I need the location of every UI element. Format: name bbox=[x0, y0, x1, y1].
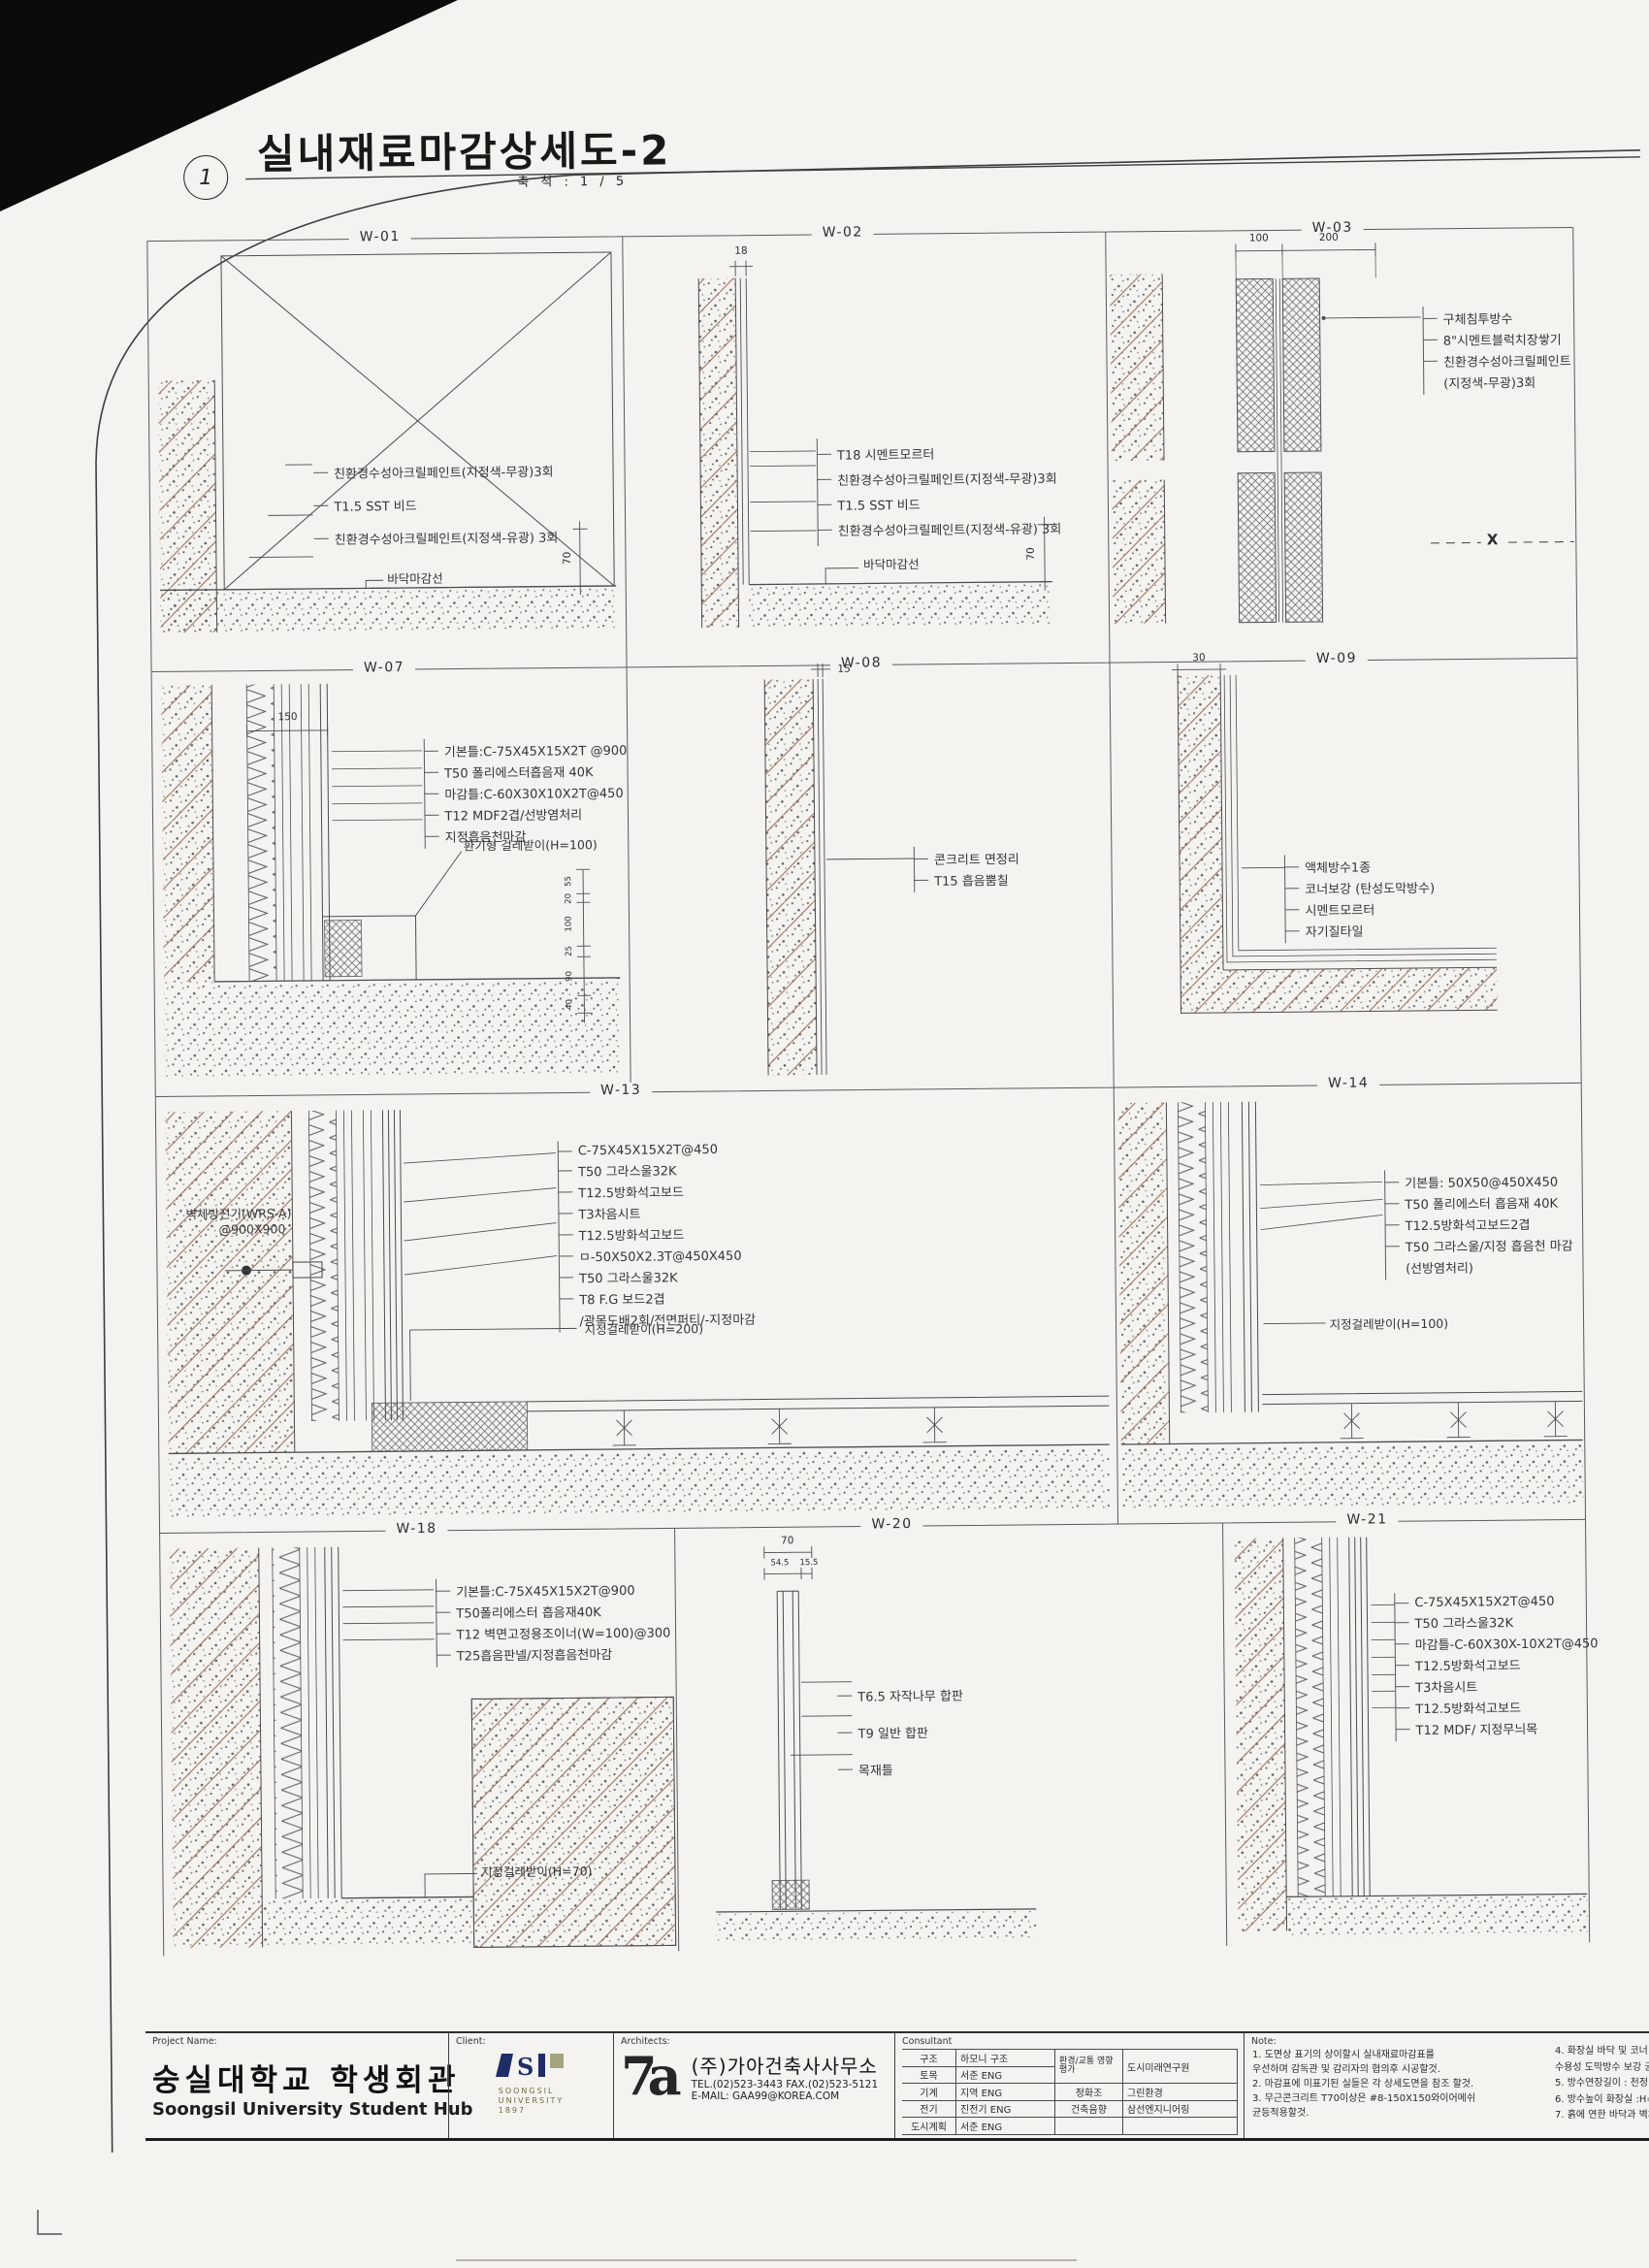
w09-dim-30: 30 bbox=[1192, 652, 1205, 664]
text-line: 3. 무근콘크리트 T70이상은 #8-150X150와이어메쉬 bbox=[1252, 2091, 1475, 2106]
annotation-item: T50 그라스울32K bbox=[559, 1160, 755, 1181]
annotation-text: T3차음시트 bbox=[1415, 1676, 1477, 1696]
annotation-item: C-75X45X15X2T@450 bbox=[559, 1143, 755, 1159]
annotation-item: T18 시멘트모르터 bbox=[818, 443, 1061, 464]
annotation-text: 시멘트모르터 bbox=[1305, 899, 1374, 919]
consultant-field: 토목 bbox=[902, 2067, 956, 2085]
architect-email: E-MAIL: GAA99@KOREA.COM bbox=[692, 2090, 879, 2102]
consultant-name: 지역 ENG bbox=[956, 2084, 1055, 2101]
leader-tick bbox=[1384, 1203, 1399, 1204]
w20-dim-155: 15.5 bbox=[799, 1558, 818, 1568]
w03-dim-100: 100 bbox=[1249, 232, 1269, 243]
leader-tick bbox=[436, 1655, 451, 1656]
w07-skirting-label: 환기형 걸레받이(H=100) bbox=[464, 834, 598, 854]
consultant-field: 환경/교통 영향평가 bbox=[1055, 2050, 1123, 2084]
panel-label-w13: W-13 bbox=[590, 1083, 652, 1099]
leader-tick bbox=[314, 538, 329, 539]
annotation-text: T12.5방화석고보드2겹 bbox=[1405, 1215, 1530, 1234]
text-line: UNIVERSITY bbox=[499, 2096, 565, 2106]
leader-tick bbox=[1385, 1267, 1400, 1268]
annotation-text: (선방염처리) bbox=[1406, 1257, 1473, 1277]
panel-label-w02: W-02 bbox=[812, 224, 874, 241]
panel-w03-drawing bbox=[1110, 241, 1575, 624]
annotation-text: T8 F.G 보드2겹 bbox=[579, 1288, 664, 1308]
annotation-text: T3차음시트 bbox=[578, 1204, 640, 1223]
annotation-item: T12.5방화석고보드 bbox=[560, 1224, 756, 1245]
panel-label-w14: W-14 bbox=[1317, 1075, 1379, 1091]
panel-label-w21: W-21 bbox=[1336, 1511, 1398, 1528]
annotation-item: T50 그라스울/지정 흡음천 마감 bbox=[1386, 1236, 1573, 1256]
annotation-text: 기본틀:C-75X45X15X2T@900 bbox=[456, 1580, 635, 1601]
leader-tick bbox=[1423, 318, 1438, 319]
w03-x-mark: X bbox=[1481, 531, 1504, 548]
leader-tick bbox=[313, 505, 328, 506]
text-line: 5. 방수연장길이 : 천정 및 벽체 bbox=[1555, 2076, 1649, 2092]
annotation-item: T50 폴리에스터흡음재 40K bbox=[425, 761, 628, 782]
w08-annotations: 콘크리트 면정리T15 흡음뿜칠 bbox=[914, 846, 1019, 892]
annotation-item: 기본틀:C-75X45X15X2T @900 bbox=[425, 740, 628, 761]
annotation-text: T1.5 SST 비드 bbox=[837, 495, 920, 514]
w18-skirting-label: 지정걸레받이(H=70) bbox=[481, 1861, 593, 1880]
annotation-item: 친환경수성아크릴페인트 bbox=[1424, 350, 1571, 370]
panel-label-w07: W-07 bbox=[353, 660, 415, 676]
consultant-name: 진전기 ENG bbox=[956, 2101, 1055, 2119]
annotation-text: 자기질타일 bbox=[1306, 922, 1364, 941]
annotation-item: T12.5방화석고보드2겹 bbox=[1385, 1215, 1572, 1235]
w07-dim-100: 100 bbox=[564, 916, 573, 931]
annotation-text: (지정색-무광)3회 bbox=[1443, 373, 1536, 392]
text-line: 수용성 도막방수 보강 균등적 bbox=[1555, 2060, 1649, 2077]
w20-annotations: T6.5 자작나무 합판T9 일반 합판목재틀 bbox=[838, 1668, 964, 1798]
annotation-item: T9 일반 합판 bbox=[838, 1723, 963, 1742]
leader-tick bbox=[817, 454, 831, 455]
project-name-en: Soongsil University Student Hub bbox=[152, 2099, 441, 2120]
leader-tick bbox=[1423, 340, 1438, 340]
annotation-item: 마감틀-C-60X30X-10X2T@450 bbox=[1396, 1633, 1599, 1653]
w18-annotations: 기본틀:C-75X45X15X2T@900T50폴리에스터 흡음재40KT12 … bbox=[436, 1576, 671, 1667]
annotation-text: T1.5 SST 비드 bbox=[334, 496, 416, 515]
annotation-item: 콘크리트 면정리 bbox=[915, 849, 1019, 868]
leader-tick bbox=[1395, 1665, 1409, 1666]
soongsil-logo-mark: S bbox=[496, 2052, 567, 2083]
annotation-text: T12 MDF2겹/선방염처리 bbox=[444, 804, 582, 824]
leader-tick bbox=[818, 530, 832, 531]
leader-tick bbox=[838, 1769, 853, 1770]
annotation-item: T3차음시트 bbox=[559, 1203, 755, 1223]
annotation-text: T12 MDF/ 지정무늬목 bbox=[1415, 1719, 1537, 1738]
soongsil-logo: S SOONGSILUNIVERSITY1897 bbox=[456, 2052, 606, 2116]
leader-tick bbox=[558, 1170, 572, 1171]
annotation-item: 자기질타일 bbox=[1286, 921, 1436, 940]
annotation-text: T50 그라스울/지정 흡음천 마감 bbox=[1406, 1236, 1573, 1256]
consultant-field: 건축음향 bbox=[1055, 2101, 1123, 2119]
leader-tick bbox=[436, 1612, 450, 1613]
panel-w14-drawing bbox=[1117, 1098, 1583, 1510]
annotation-item: 친환경수성아크릴페인트(지정색-유광) 3회 bbox=[819, 519, 1062, 539]
w02-dim-70: 70 bbox=[1025, 547, 1037, 560]
annotation-text: ㅁ-50X50X2.3T@450X450 bbox=[579, 1246, 742, 1266]
text-line: 균등적용할것. bbox=[1252, 2106, 1475, 2121]
w01-floor-label: 바닥마감선 bbox=[387, 568, 443, 588]
w07-annotations: 기본틀:C-75X45X15X2T @900T50 폴리에스터흡음재 40K마감… bbox=[424, 737, 629, 849]
annotation-item: 구체침투방수 bbox=[1424, 308, 1571, 327]
annotation-item: 친환경수성아크릴페인트(지정색-유광) 3회 bbox=[315, 528, 559, 548]
annotation-text: 액체방수1종 bbox=[1305, 857, 1371, 876]
consultant-name: 도시미래연구원 bbox=[1123, 2050, 1238, 2084]
project-label: Project Name: bbox=[152, 2036, 441, 2047]
annotation-text: 콘크리트 면정리 bbox=[934, 849, 1019, 868]
annotation-text: 친환경수성아크릴페인트(지정색-유광) 3회 bbox=[838, 519, 1062, 539]
consultant-field: 기계 bbox=[902, 2084, 956, 2101]
annotation-item: 기본틀: 50X50@450X450 bbox=[1385, 1172, 1572, 1192]
annotation-item: (지정색-무광)3회 bbox=[1424, 372, 1571, 391]
annotation-text: T6.5 자작나무 합판 bbox=[857, 1686, 963, 1705]
annotation-item: T50 그라스울32K bbox=[1395, 1611, 1598, 1632]
leader-tick bbox=[436, 1634, 451, 1635]
w07-dim-90: 90 bbox=[565, 971, 574, 982]
text-line: 2. 마감표에 미표기된 실들은 각 상세도면을 참조 할것. bbox=[1252, 2077, 1475, 2091]
leader-tick bbox=[1396, 1729, 1410, 1730]
annotation-text: T50 그라스울32K bbox=[579, 1267, 678, 1286]
consultant-label: Consultant bbox=[902, 2036, 1237, 2047]
annotation-item: 친환경수성아크릴페인트(지정색-무광)3회 bbox=[314, 462, 558, 482]
annotation-item: T12 MDF2겹/선방염처리 bbox=[425, 804, 628, 825]
consultant-name: 삼선엔지니어링 bbox=[1123, 2101, 1238, 2119]
annotation-item: T12 MDF/ 지정무늬목 bbox=[1396, 1718, 1599, 1738]
annotation-text: T50 폴리에스터 흡음재 40K bbox=[1405, 1193, 1558, 1214]
text-line: 1. 도면상 표기의 상이할시 실내재료마감표를 bbox=[1252, 2048, 1475, 2062]
annotation-text: 친환경수성아크릴페인트 bbox=[1443, 350, 1571, 370]
consultant-field: 구조 bbox=[902, 2050, 956, 2067]
leader-tick bbox=[838, 1733, 853, 1733]
annotation-item: 시멘트모르터 bbox=[1285, 899, 1435, 919]
w02-dim-18: 18 bbox=[734, 245, 747, 257]
leader-tick bbox=[837, 1696, 852, 1697]
leader-tick bbox=[1284, 909, 1299, 910]
text-line: 1897 bbox=[499, 2106, 565, 2116]
gaa-architects-logo: 7a bbox=[621, 2051, 684, 2101]
annotation-text: 기본틀: 50X50@450X450 bbox=[1405, 1172, 1558, 1192]
panel-label-w18: W-18 bbox=[385, 1521, 447, 1538]
annotation-item: T12.5방화석고보드 bbox=[1396, 1654, 1599, 1674]
w02-annotations: T18 시멘트모르터친환경수성아크릴페인트(지정색-무광)3회T1.5 SST … bbox=[817, 437, 1062, 546]
annotation-text: T12.5방화석고보드 bbox=[1415, 1698, 1521, 1717]
client-label: Client: bbox=[456, 2036, 606, 2047]
panel-label-w09: W-09 bbox=[1306, 651, 1368, 667]
leader-tick bbox=[1284, 866, 1299, 867]
annotation-item: T25흡음판넬/지정흡음천마감 bbox=[437, 1643, 671, 1664]
annotation-item: 친환경수성아크릴페인트(지정색-무광)3회 bbox=[818, 469, 1061, 489]
leader-tick bbox=[1395, 1707, 1409, 1708]
annotation-item: C-75X45X15X2T@450 bbox=[1395, 1594, 1598, 1610]
panel-w09-drawing bbox=[1172, 661, 1497, 1013]
scan-corner-mark bbox=[37, 2210, 62, 2235]
annotation-text: T12.5방화석고보드 bbox=[578, 1182, 684, 1201]
consultant-name: 서준 ENG bbox=[956, 2067, 1055, 2085]
leader-tick bbox=[313, 472, 328, 473]
w13-device-name: 벽체방진기(WRS-A) bbox=[185, 1206, 291, 1222]
leader-tick bbox=[1394, 1603, 1408, 1604]
annotation-text: 친환경수성아크릴페인트(지정색-무광)3회 bbox=[334, 462, 554, 482]
annotation-text: 친환경수성아크릴페인트(지정색-유광) 3회 bbox=[335, 528, 559, 548]
consultant-empty-cell bbox=[1123, 2118, 1238, 2135]
w13-device-spec: @900X900 bbox=[186, 1221, 292, 1238]
w08-dim-15: 15 bbox=[837, 664, 850, 675]
annotation-text: T50 그라스울32K bbox=[578, 1160, 677, 1180]
consultant-empty-cell bbox=[1055, 2118, 1123, 2135]
annotation-item: T6.5 자작나무 합판 bbox=[838, 1686, 963, 1705]
drawing-area: 1 실내재료마감상세도-2 축 척 : 1 / 5 W-01 W-02 W-03… bbox=[0, 0, 1649, 2268]
drawing-linework bbox=[0, 0, 1649, 2268]
w07-dim-150: 150 bbox=[277, 711, 297, 723]
leader-tick bbox=[914, 859, 928, 859]
leader-tick bbox=[424, 815, 438, 816]
annotation-text: C-75X45X15X2T@450 bbox=[578, 1143, 718, 1158]
consultant-field: 전기 bbox=[902, 2101, 956, 2119]
leader-tick bbox=[559, 1298, 573, 1299]
w14-skirting-label: 지정걸레받이(H=100) bbox=[1329, 1313, 1448, 1333]
panel-label-w01: W-01 bbox=[349, 229, 411, 245]
leader-tick bbox=[424, 751, 438, 752]
annotation-item: 액체방수1종 bbox=[1285, 857, 1435, 876]
architect-tel: TEL.(02)523-3443 FAX.(02)523-5121 bbox=[692, 2079, 879, 2090]
leader-tick bbox=[817, 504, 831, 505]
consultant-table: 구조 하모니 구조 환경/교통 영향평가 도시미래연구원 토목 서준 ENG 기… bbox=[902, 2049, 1238, 2135]
w13-annotations: C-75X45X15X2T@450T50 그라스울32KT12.5방화석고보드T… bbox=[558, 1140, 756, 1333]
annotation-text: T50 그라스울32K bbox=[1414, 1612, 1513, 1632]
annotation-item: T15 흡음뿜칠 bbox=[915, 870, 1019, 890]
panel-w08-drawing bbox=[764, 663, 916, 1075]
annotation-item: ㅁ-50X50X2.3T@450X450 bbox=[560, 1246, 756, 1266]
annotation-item: T3차음시트 bbox=[1396, 1675, 1599, 1696]
annotation-item: 목재틀 bbox=[839, 1760, 964, 1779]
leader-tick bbox=[425, 836, 439, 837]
annotation-text: T9 일반 합판 bbox=[857, 1723, 928, 1742]
project-section: Project Name: 숭실대학교 학생회관 Soongsil Univer… bbox=[145, 2033, 448, 2138]
annotation-text: T12.5방화석고보드 bbox=[1415, 1655, 1521, 1674]
annotation-text: 친환경수성아크릴페인트(지정색-무광)3회 bbox=[837, 469, 1057, 489]
leader-tick bbox=[1285, 930, 1300, 931]
w07-dim-55: 55 bbox=[564, 876, 573, 887]
leader-tick bbox=[559, 1234, 573, 1235]
annotation-text: 마감틀:C-60X30X10X2T@450 bbox=[444, 783, 624, 803]
leader-tick bbox=[436, 1591, 450, 1592]
w13-skirting-label: 지정걸레받이(H=200) bbox=[584, 1318, 703, 1338]
scan-line-artifact bbox=[456, 2259, 1077, 2261]
leader-tick bbox=[558, 1213, 572, 1214]
annotation-text: T50 폴리에스터흡음재 40K bbox=[444, 761, 594, 781]
w03-annotations: 구체침투방수8"시멘트블럭치장쌓기친환경수성아크릴페인트(지정색-무광)3회 bbox=[1423, 305, 1571, 394]
client-section: Client: S SOONGSILUNIVERSITY1897 bbox=[448, 2033, 613, 2138]
leader-tick bbox=[424, 794, 438, 794]
w13-device-label: 벽체방진기(WRS-A) @900X900 bbox=[185, 1206, 291, 1238]
leader-tick bbox=[1395, 1622, 1409, 1623]
annotation-text: T18 시멘트모르터 bbox=[837, 444, 935, 464]
consultant-name: 그린환경 bbox=[1123, 2084, 1238, 2101]
text-line: SOONGSIL bbox=[499, 2087, 565, 2096]
text-line: 4. 화장실 바닥 및 코너 보강 bbox=[1555, 2044, 1649, 2060]
w02-floor-label: 바닥마감선 bbox=[863, 554, 920, 573]
consultant-field: 정화조 bbox=[1055, 2084, 1123, 2101]
drawing-number-bubble: 1 bbox=[183, 155, 228, 200]
leader-tick bbox=[1395, 1643, 1409, 1644]
w07-dim-25: 25 bbox=[565, 946, 574, 956]
annotation-item: T8 F.G 보드2겹 bbox=[560, 1288, 756, 1309]
w01-annotations: 친환경수성아크릴페인트(지정색-무광)3회T1.5 SST 비드친환경수성아크릴… bbox=[314, 447, 559, 563]
leader-tick bbox=[558, 1150, 572, 1151]
leader-tick bbox=[558, 1191, 572, 1192]
annotation-item: 코너보강 (탄성도막방수) bbox=[1285, 878, 1435, 897]
leader-tick bbox=[914, 880, 928, 881]
annotation-text: C-75X45X15X2T@450 bbox=[1414, 1595, 1554, 1610]
annotation-item: T12.5방화석고보드 bbox=[559, 1182, 755, 1202]
leader-tick bbox=[1385, 1246, 1400, 1247]
annotation-text: T50폴리에스터 흡음재40K bbox=[456, 1602, 601, 1621]
consultant-field: 도시계획 bbox=[902, 2118, 956, 2135]
text-line: 7. 흙에 연한 바닥과 벽체에 구 bbox=[1555, 2108, 1649, 2124]
svg-text:S: S bbox=[517, 2053, 533, 2081]
title-block: Project Name: 숭실대학교 학생회관 Soongsil Univer… bbox=[145, 2031, 1649, 2141]
annotation-item: T50 그라스울32K bbox=[560, 1267, 756, 1287]
leader-tick bbox=[1423, 361, 1438, 362]
annotation-item: 기본틀:C-75X45X15X2T@900 bbox=[436, 1579, 670, 1600]
annotation-item: T1.5 SST 비드 bbox=[818, 494, 1061, 514]
leader-tick bbox=[1395, 1686, 1409, 1687]
annotation-item: T12 벽면고정용조이너(W=100)@300 bbox=[436, 1622, 670, 1642]
annotation-item: T50폴리에스터 흡음재40K bbox=[436, 1601, 670, 1621]
w01-dim-70: 70 bbox=[562, 552, 573, 565]
scale-label: 축 척 : 1 / 5 bbox=[517, 171, 628, 190]
architect-firm-name: (주)가아건축사사무소 bbox=[692, 2051, 879, 2079]
soongsil-logo-text: SOONGSILUNIVERSITY1897 bbox=[499, 2087, 565, 2116]
annotation-item: T1.5 SST 비드 bbox=[314, 495, 558, 515]
project-name-ko: 숭실대학교 학생회관 bbox=[152, 2056, 441, 2099]
note-items-left: 1. 도면상 표기의 상이할시 실내재료마감표를 우선하며 감독관 및 감리자의… bbox=[1252, 2048, 1475, 2121]
text-line: 우선하며 감독관 및 감리자의 협의후 시공할것. bbox=[1252, 2062, 1475, 2077]
architects-section: Architects: 7a (주)가아건축사사무소 TEL.(02)523-3… bbox=[613, 2033, 894, 2138]
w03-dim-200: 200 bbox=[1319, 232, 1339, 243]
annotation-text: T12 벽면고정용조이너(W=100)@300 bbox=[456, 1622, 670, 1642]
annotation-text: 구체침투방수 bbox=[1443, 308, 1513, 328]
note-items-right: 4. 화장실 바닥 및 코너 보강 수용성 도막방수 보강 균등적5. 방수연장… bbox=[1555, 2044, 1649, 2124]
annotation-item: 8"시멘트블럭치장쌓기 bbox=[1424, 329, 1571, 348]
w14-annotations: 기본틀: 50X50@450X450T50 폴리에스터 흡음재 40KT12.5… bbox=[1384, 1169, 1573, 1280]
annotation-text: 기본틀:C-75X45X15X2T @900 bbox=[444, 740, 628, 761]
leader-tick bbox=[559, 1319, 573, 1320]
annotation-item: (선방염처리) bbox=[1386, 1257, 1573, 1278]
leader-tick bbox=[1384, 1182, 1399, 1183]
w07-dim-20: 20 bbox=[564, 893, 573, 904]
w21-annotations: C-75X45X15X2T@450T50 그라스울32K마감틀-C-60X30X… bbox=[1394, 1591, 1599, 1741]
annotation-item: T12.5방화석고보드 bbox=[1396, 1697, 1599, 1717]
drawing-number: 1 bbox=[199, 165, 212, 189]
annotation-text: T25흡음판넬/지정흡음천마감 bbox=[457, 1644, 613, 1665]
w20-dim-70: 70 bbox=[781, 1535, 793, 1546]
note-section: Note: 1. 도면상 표기의 상이할시 실내재료마감표를 우선하며 감독관 … bbox=[1244, 2033, 1649, 2138]
annotation-text: 코너보강 (탄성도막방수) bbox=[1305, 878, 1435, 897]
annotation-text: 8"시멘트블럭치장쌓기 bbox=[1443, 330, 1562, 349]
leader-tick bbox=[559, 1255, 573, 1256]
annotation-text: 마감틀-C-60X30X-10X2T@450 bbox=[1415, 1633, 1599, 1653]
annotation-item: 마감틀:C-60X30X10X2T@450 bbox=[425, 783, 628, 803]
leader-tick bbox=[1284, 888, 1299, 889]
leader-tick bbox=[817, 479, 831, 480]
text-line: 6. 방수높이 화장실 :H=1200 bbox=[1555, 2092, 1649, 2109]
leader-tick bbox=[424, 772, 438, 773]
panel-label-w20: W-20 bbox=[860, 1516, 922, 1533]
consultant-name: 서준 ENG bbox=[956, 2118, 1055, 2135]
consultant-section: Consultant 구조 하모니 구조 환경/교통 영향평가 도시미래연구원 … bbox=[894, 2033, 1244, 2138]
annotation-text: 목재틀 bbox=[858, 1760, 893, 1778]
w09-annotations: 액체방수1종코너보강 (탄성도막방수)시멘트모르터자기질타일 bbox=[1284, 854, 1436, 943]
leader-tick bbox=[1423, 382, 1438, 383]
leader-tick bbox=[559, 1277, 573, 1278]
w07-dim-40: 40 bbox=[565, 999, 574, 1010]
annotation-item: T50 폴리에스터 흡음재 40K bbox=[1385, 1193, 1572, 1214]
consultant-name: 하모니 구조 bbox=[956, 2050, 1055, 2067]
annotation-text: T15 흡음뿜칠 bbox=[934, 870, 1009, 890]
annotation-text: T12.5방화석고보드 bbox=[579, 1224, 685, 1244]
leader-tick bbox=[1385, 1224, 1400, 1225]
scanned-drawing-sheet: 1 실내재료마감상세도-2 축 척 : 1 / 5 W-01 W-02 W-03… bbox=[0, 0, 1649, 2268]
w20-dim-545: 54.5 bbox=[770, 1558, 789, 1568]
